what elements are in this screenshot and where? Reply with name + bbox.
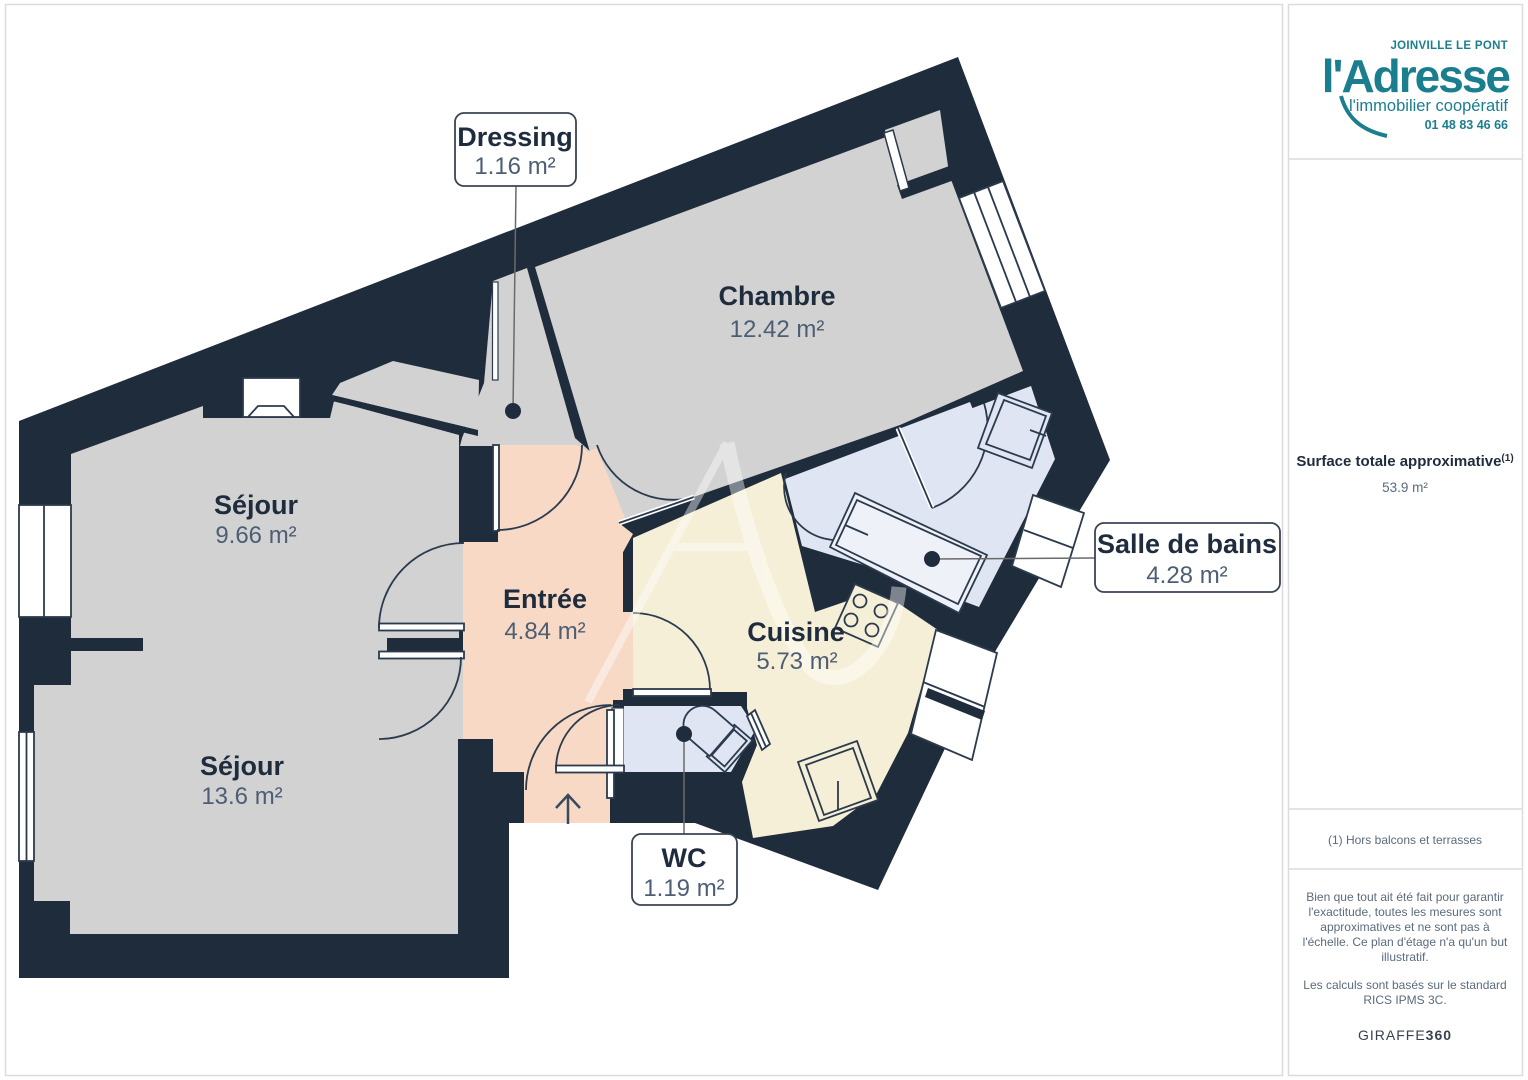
svg-text:4.84 m²: 4.84 m² [504, 618, 585, 645]
svg-text:Salle de bains: Salle de bains [1097, 529, 1277, 559]
svg-text:Entrée: Entrée [503, 584, 587, 614]
svg-text:Bien que tout ait été fait pou: Bien que tout ait été fait pour garantir [1306, 890, 1503, 904]
svg-text:4.28 m²: 4.28 m² [1146, 562, 1227, 589]
svg-text:Cuisine: Cuisine [747, 617, 845, 647]
svg-text:53.9 m²: 53.9 m² [1382, 480, 1428, 495]
svg-text:Les calculs sont basés sur le: Les calculs sont basés sur le standard [1303, 978, 1506, 992]
svg-text:Dressing: Dressing [457, 122, 573, 152]
svg-text:01 48 83 46 66: 01 48 83 46 66 [1425, 118, 1508, 132]
svg-text:1.16 m²: 1.16 m² [474, 153, 555, 180]
svg-text:l'Adresse: l'Adresse [1322, 50, 1511, 102]
svg-text:12.42 m²: 12.42 m² [730, 316, 825, 343]
svg-text:Chambre: Chambre [718, 281, 835, 311]
svg-text:Séjour: Séjour [200, 751, 285, 781]
svg-text:Séjour: Séjour [214, 490, 299, 520]
svg-text:13.6 m²: 13.6 m² [201, 783, 282, 810]
svg-text:illustratif.: illustratif. [1381, 950, 1428, 964]
svg-text:GIRAFFE360: GIRAFFE360 [1358, 1027, 1452, 1043]
svg-text:RICS IPMS 3C.: RICS IPMS 3C. [1363, 993, 1446, 1007]
svg-text:9.66 m²: 9.66 m² [215, 522, 296, 549]
svg-text:5.73 m²: 5.73 m² [756, 648, 837, 675]
svg-text:Surface totale approximative(1: Surface totale approximative(1) [1296, 453, 1513, 470]
svg-text:l'immobilier coopératif: l'immobilier coopératif [1349, 97, 1508, 115]
svg-text:1.19 m²: 1.19 m² [643, 875, 724, 902]
svg-text:approximatives et ne sont pas: approximatives et ne sont pas à [1320, 920, 1490, 934]
svg-text:WC: WC [662, 843, 707, 873]
svg-text:l'exactitude, toutes les mesur: l'exactitude, toutes les mesures sont [1308, 905, 1502, 919]
svg-text:l'échelle. Ce plan d'étage n'a: l'échelle. Ce plan d'étage n'a qu'un but [1303, 935, 1508, 949]
svg-text:(1) Hors balcons et terrasses: (1) Hors balcons et terrasses [1328, 833, 1482, 847]
